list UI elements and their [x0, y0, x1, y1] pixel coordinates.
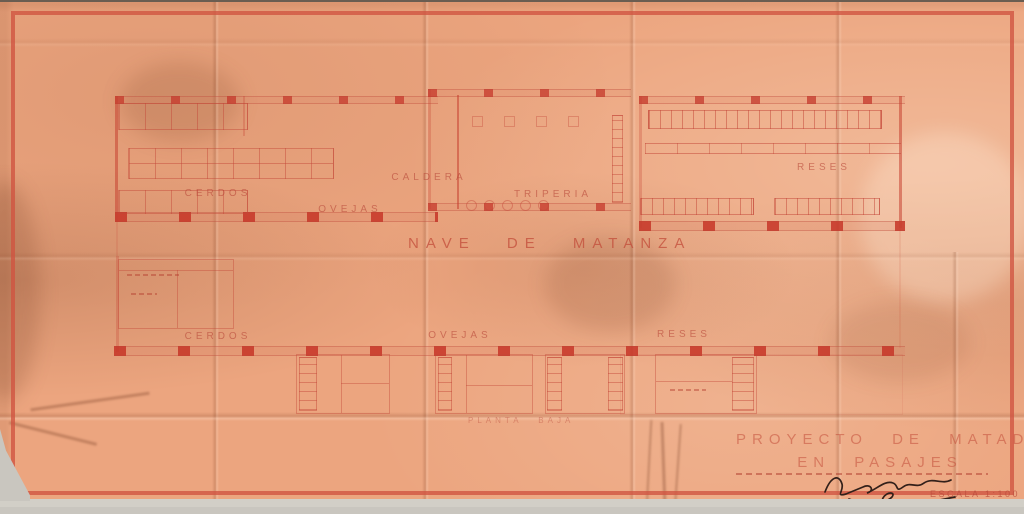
wall — [639, 221, 905, 231]
annex-room — [296, 354, 390, 414]
side-room — [118, 259, 234, 329]
partition — [177, 270, 178, 328]
wall — [639, 96, 905, 104]
wall — [899, 96, 902, 228]
illegible-label — [127, 274, 179, 276]
room-label-cerdos-bottom: CERDOS — [176, 331, 260, 342]
stall-row — [299, 357, 317, 411]
wall — [899, 228, 901, 348]
stall-row — [640, 198, 754, 215]
partition — [466, 355, 467, 413]
partition — [341, 383, 389, 384]
room-label-reses-bottom: RESES — [646, 329, 722, 340]
partition — [119, 270, 233, 271]
platform-outline — [620, 354, 903, 415]
equipment-circles — [466, 200, 549, 211]
illegible-label — [131, 293, 157, 295]
stall-row — [774, 198, 880, 215]
column — [472, 116, 483, 127]
floor-label: PLANTA BAJA — [468, 416, 574, 425]
feeding-trough — [645, 143, 901, 154]
scanner-background-strip — [0, 499, 1024, 507]
room-label-cerdos-top: CERDOS — [172, 188, 264, 199]
project-title-line1: PROYECTO DE MATADERO — [736, 431, 1012, 448]
column — [568, 116, 579, 127]
stall-row — [547, 357, 562, 411]
animal-pens — [118, 103, 248, 130]
room-label-reses-top: RESES — [782, 162, 866, 173]
room-label-ovejas-bottom: OVEJAS — [416, 330, 504, 341]
room-label-caldera: CALDERA — [388, 172, 470, 183]
plan-title: NAVE DE MATANZA — [408, 235, 664, 252]
room-label-triperia: TRIPERIA — [506, 189, 600, 200]
partition — [341, 355, 342, 413]
room-label-ovejas-top: OVEJAS — [300, 204, 400, 215]
partition — [466, 385, 532, 386]
blueprint-paper: CERDOS OVEJAS CALDERA TRIPERIA RESES CER… — [0, 2, 1024, 507]
wall — [116, 220, 118, 256]
stall-row — [612, 115, 623, 203]
column — [536, 116, 547, 127]
column — [504, 116, 515, 127]
scale-label: ESCALA 1:100 — [930, 489, 1020, 499]
wall — [457, 95, 459, 209]
stall-row — [438, 357, 452, 411]
stall-row — [648, 110, 882, 129]
animal-pens — [128, 148, 334, 179]
scan-edge — [0, 0, 1024, 2]
annex-room — [545, 354, 625, 414]
wall — [428, 89, 431, 209]
annex-room — [435, 354, 533, 414]
